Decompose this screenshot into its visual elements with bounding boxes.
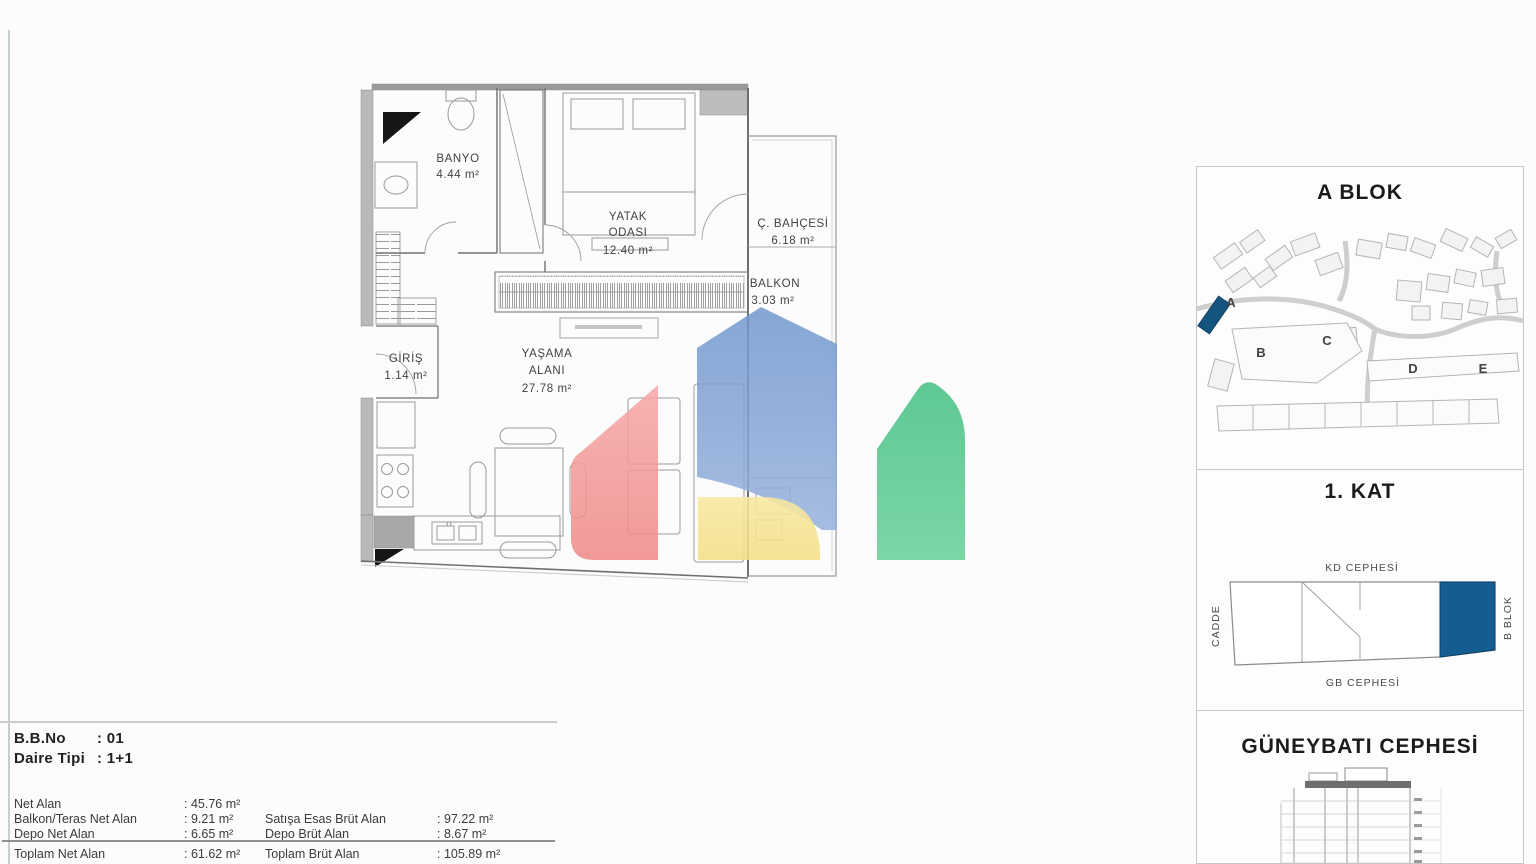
- table-row-label: Depo Net Alan: [14, 827, 95, 841]
- table-row-label: Toplam Brüt Alan: [265, 847, 360, 861]
- table-row-value: : 97.22 m²: [437, 812, 493, 826]
- unit-no-value: : 01: [97, 730, 124, 747]
- room-label-yatak-1: YATAK: [609, 211, 647, 223]
- site-letter-b: B: [1256, 345, 1265, 360]
- b-blok-label: B BLOK: [1502, 596, 1514, 640]
- site-panel-title: A BLOK: [1197, 181, 1523, 205]
- room-label-yatak-2: ODASI: [609, 227, 648, 239]
- room-label-bahcesi: Ç. BAHÇESİ: [757, 217, 828, 230]
- room-area-yatak: 12.40 m²: [603, 245, 653, 257]
- site-buildings: [1208, 229, 1519, 431]
- logo-green-shape: [877, 382, 965, 560]
- unit-no-label: B.B.No: [14, 730, 66, 747]
- site-letter-d: D: [1408, 361, 1417, 376]
- table-row-label: Depo Brüt Alan: [265, 827, 349, 841]
- table-row-value: : 9.21 m²: [184, 812, 233, 826]
- table-row-label: Net Alan: [14, 797, 61, 811]
- table-row-value: : 45.76 m²: [184, 797, 240, 811]
- room-label-giris: GİRİŞ: [389, 352, 423, 365]
- table-row-value: : 105.89 m²: [437, 847, 500, 861]
- info-table: B.B.No : 01 Daire Tipi : 1+1 Net Alan : …: [0, 721, 557, 864]
- site-plan-panel: A BLOK: [1196, 166, 1524, 470]
- kd-cephesi-label: KD CEPHESİ: [1325, 561, 1399, 574]
- site-letter-c: C: [1322, 333, 1332, 348]
- table-total-rule: [2, 840, 555, 842]
- wardrobe: [495, 272, 748, 338]
- room-area-bahcesi: 6.18 m²: [771, 235, 814, 247]
- site-letter-a: A: [1226, 295, 1236, 310]
- room-area-giris: 1.14 m²: [384, 370, 427, 382]
- site-block-a-highlight: [1198, 296, 1230, 334]
- table-row-value: : 61.62 m²: [184, 847, 240, 861]
- gb-cephesi-label: GB CEPHESİ: [1326, 676, 1400, 689]
- room-area-balkon: 3.03 m²: [751, 295, 794, 307]
- floor-locator-panel: 1. KAT KD CEPHESİ GB CEPHESİ CADDE B BLO…: [1196, 469, 1524, 711]
- cadde-label: CADDE: [1210, 605, 1222, 647]
- table-row-label: Toplam Net Alan: [14, 847, 105, 861]
- plan-walls: [361, 88, 836, 582]
- drawing-sheet: BANYO 4.44 m² YATAK ODASI 12.40 m² Ç. BA…: [0, 0, 1536, 864]
- floor-block-highlight: [1440, 582, 1495, 657]
- info-table-top-border: [0, 721, 557, 723]
- room-label-yasama-2: ALANI: [529, 365, 565, 377]
- facade-panel: GÜNEYBATI CEPHESİ: [1196, 710, 1524, 864]
- table-row-label: Satışa Esas Brüt Alan: [265, 812, 386, 826]
- room-area-banyo: 4.44 m²: [436, 169, 479, 181]
- table-row-label: Balkon/Teras Net Alan: [14, 812, 137, 826]
- floor-locator-diagram: KD CEPHESİ GB CEPHESİ CADDE B BLOK: [1197, 470, 1523, 710]
- section-marker-icon: [375, 112, 421, 567]
- room-label-balkon: BALKON: [750, 278, 800, 290]
- room-area-yasama: 27.78 m²: [522, 383, 572, 395]
- unit-type-label: Daire Tipi: [14, 750, 85, 767]
- unit-type-value: : 1+1: [97, 750, 133, 767]
- room-label-yasama-1: YAŞAMA: [522, 348, 573, 360]
- site-letter-e: E: [1479, 361, 1488, 376]
- room-label-banyo: BANYO: [436, 153, 479, 165]
- floor-plan: BANYO 4.44 m² YATAK ODASI 12.40 m² Ç. BA…: [350, 75, 850, 585]
- facade-elevation: [1197, 711, 1523, 864]
- site-plan-map: A B C D E: [1197, 211, 1523, 469]
- table-row-value: : 8.67 m²: [437, 827, 486, 841]
- table-row-value: : 6.65 m²: [184, 827, 233, 841]
